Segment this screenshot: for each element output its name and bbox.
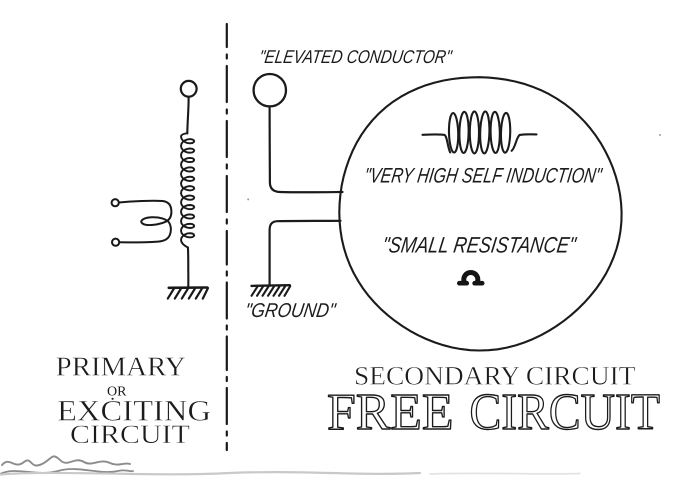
- svg-text:"SMALL RESISTANCE": "SMALL RESISTANCE": [381, 233, 579, 258]
- svg-text:"ELEVATED CONDUCTOR": "ELEVATED CONDUCTOR": [258, 46, 454, 67]
- svg-text:"GROUND": "GROUND": [244, 300, 338, 322]
- svg-text:CIRCUIT: CIRCUIT: [70, 420, 190, 449]
- svg-text:FREE: FREE: [327, 384, 454, 441]
- svg-text:PRIMARY: PRIMARY: [56, 351, 186, 382]
- svg-text:CIRCUIT: CIRCUIT: [470, 384, 661, 441]
- svg-text:"VERY HIGH SELF INDUCTION": "VERY HIGH SELF INDUCTION": [363, 165, 605, 188]
